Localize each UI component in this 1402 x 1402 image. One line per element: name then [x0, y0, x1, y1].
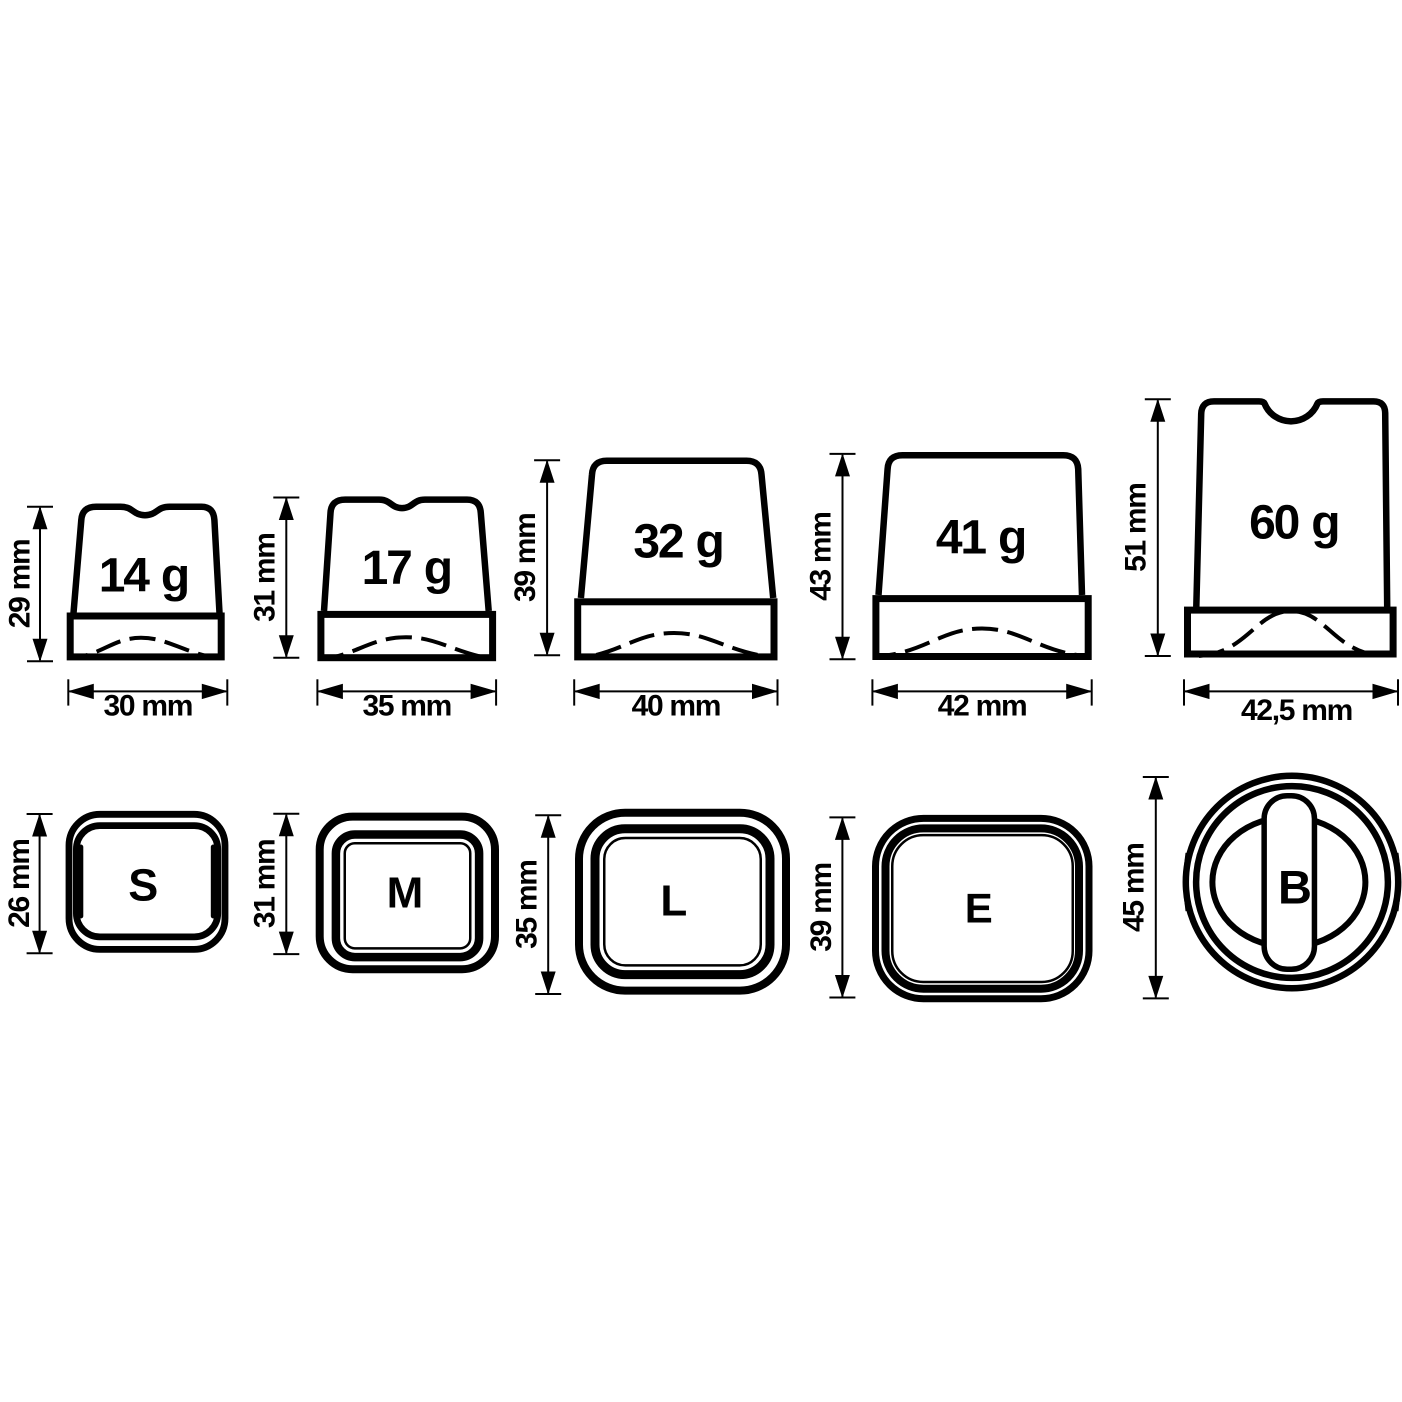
- svg-text:43 mm: 43 mm: [804, 512, 837, 601]
- svg-text:39 mm: 39 mm: [805, 863, 838, 952]
- svg-text:42 mm: 42 mm: [938, 690, 1027, 723]
- svg-text:M: M: [387, 868, 424, 917]
- svg-text:40 mm: 40 mm: [632, 690, 721, 723]
- svg-text:42,5 mm: 42,5 mm: [1241, 694, 1352, 727]
- svg-text:51 mm: 51 mm: [1120, 483, 1153, 572]
- svg-text:31 mm: 31 mm: [248, 533, 281, 622]
- svg-text:14 g: 14 g: [99, 549, 188, 602]
- svg-text:31 mm: 31 mm: [248, 840, 281, 929]
- svg-text:26 mm: 26 mm: [3, 839, 36, 928]
- svg-text:29 mm: 29 mm: [4, 540, 37, 629]
- svg-text:60 g: 60 g: [1249, 497, 1338, 550]
- svg-text:39 mm: 39 mm: [509, 513, 542, 602]
- svg-text:17 g: 17 g: [362, 542, 451, 595]
- svg-text:30 mm: 30 mm: [104, 690, 193, 723]
- svg-text:41 g: 41 g: [936, 511, 1025, 564]
- svg-text:B: B: [1278, 861, 1312, 914]
- svg-text:45 mm: 45 mm: [1118, 843, 1151, 932]
- svg-text:L: L: [660, 876, 687, 925]
- svg-text:35 mm: 35 mm: [510, 860, 543, 949]
- svg-text:S: S: [128, 860, 158, 911]
- svg-text:E: E: [965, 884, 993, 931]
- svg-text:35 mm: 35 mm: [362, 690, 451, 723]
- svg-text:32 g: 32 g: [633, 516, 722, 569]
